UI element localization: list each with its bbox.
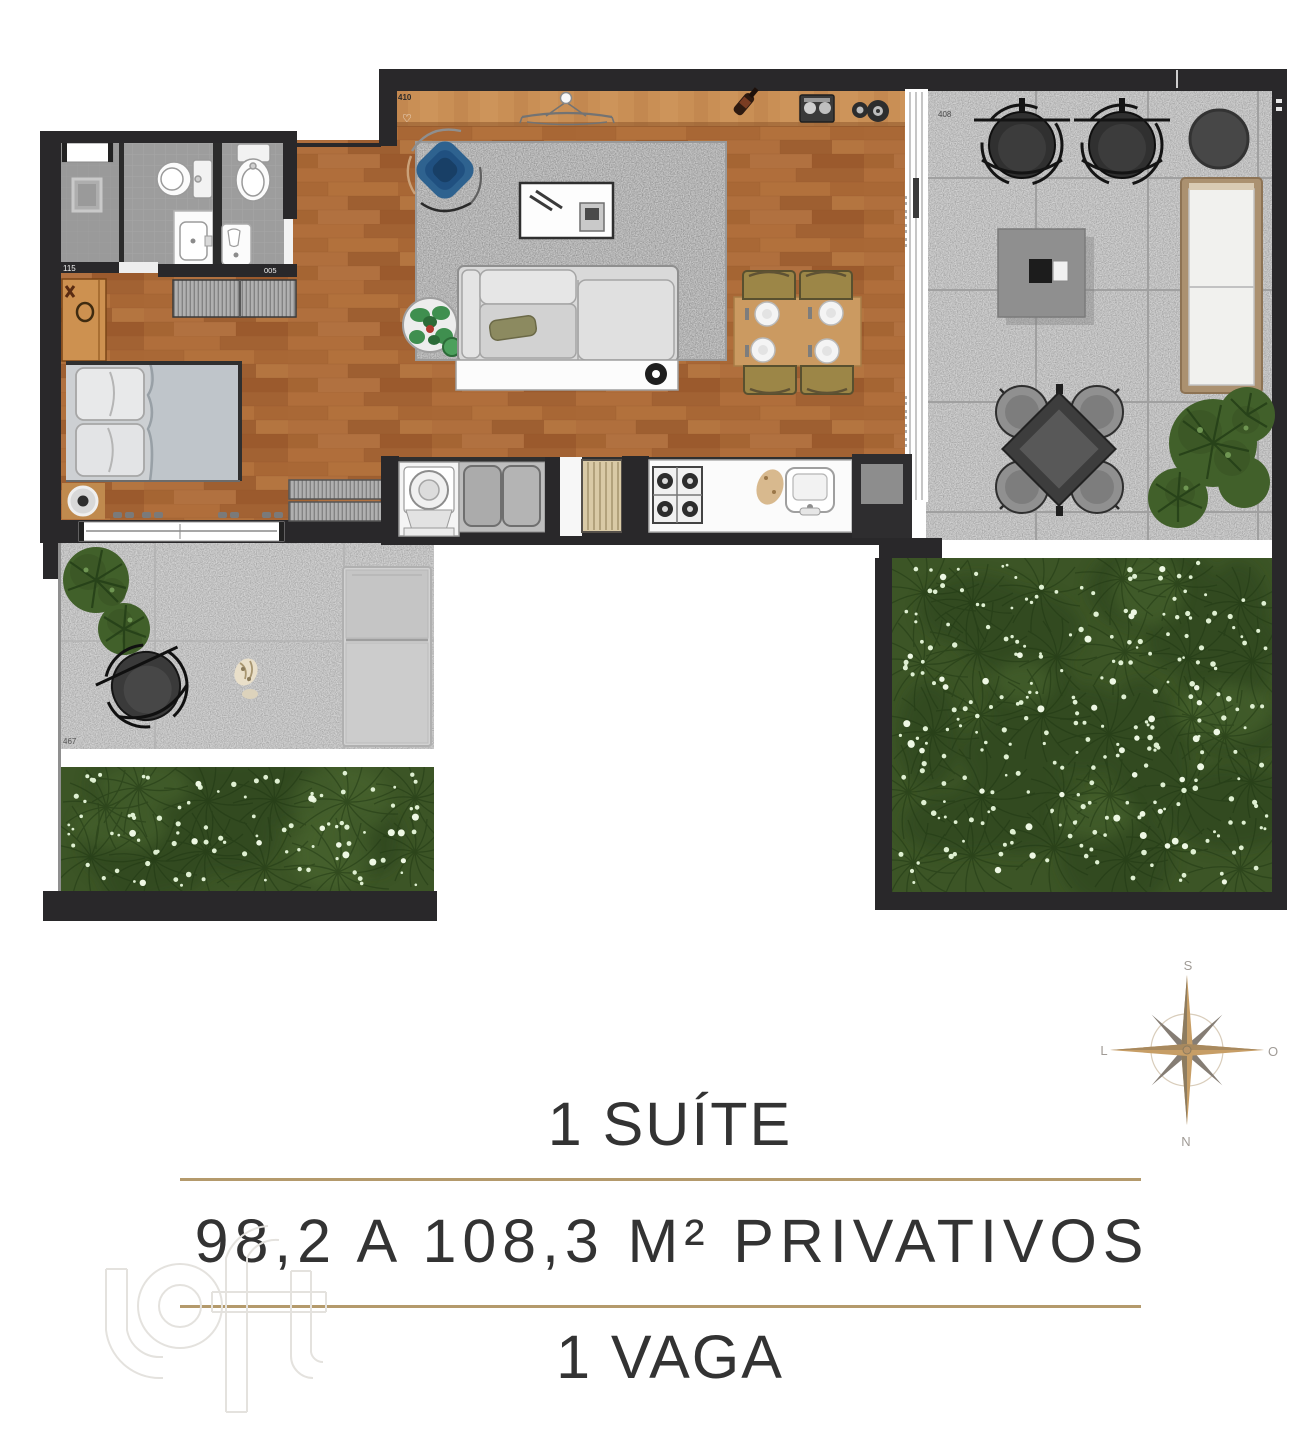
svg-text:♡: ♡ — [402, 113, 412, 125]
svg-text:L: L — [1100, 1043, 1107, 1058]
svg-text:410: 410 — [398, 93, 412, 102]
svg-text:1 SUÍTE: 1 SUÍTE — [548, 1090, 793, 1158]
svg-text:005: 005 — [264, 266, 277, 275]
svg-text:S: S — [1184, 958, 1193, 973]
svg-text:N: N — [1181, 1134, 1190, 1149]
svg-text:467: 467 — [63, 737, 77, 746]
svg-text:408: 408 — [938, 110, 952, 119]
svg-text:1 VAGA: 1 VAGA — [556, 1323, 784, 1391]
svg-text:115: 115 — [63, 264, 76, 273]
svg-text:O: O — [1268, 1044, 1278, 1059]
svg-text:98,2 A 108,3 M² PRIVATIVOS: 98,2 A 108,3 M² PRIVATIVOS — [195, 1207, 1150, 1275]
